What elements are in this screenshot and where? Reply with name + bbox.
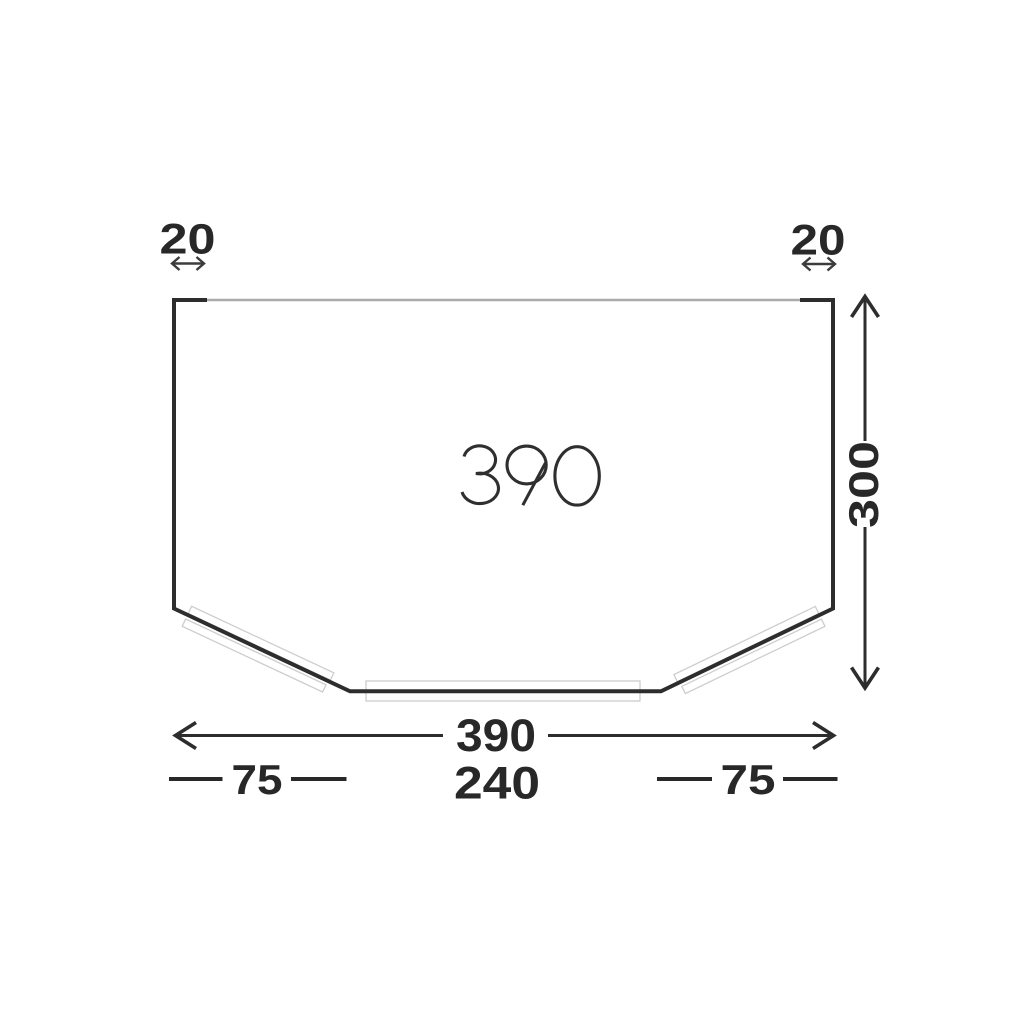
svg-text:20: 20 [791,217,846,265]
svg-text:75: 75 [232,756,283,803]
svg-text:300: 300 [840,441,887,528]
svg-text:240: 240 [454,758,540,809]
svg-text:390: 390 [456,710,536,761]
svg-text:75: 75 [721,756,776,803]
svg-text:20: 20 [160,216,216,264]
